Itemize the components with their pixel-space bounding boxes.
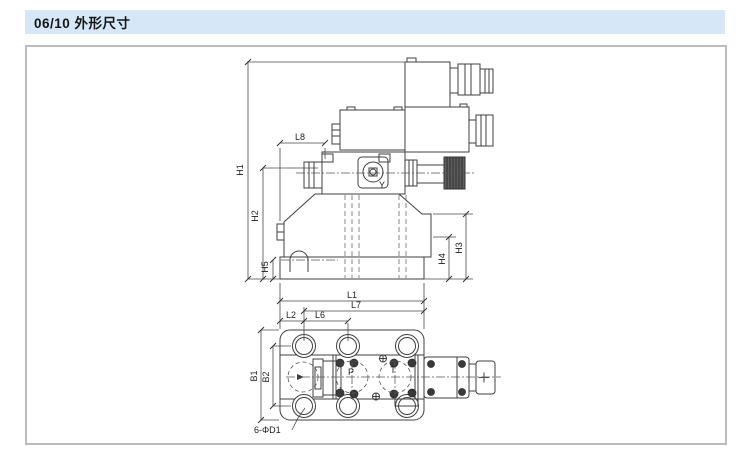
section-header-bar: 06/10 外形尺寸 xyxy=(25,10,725,34)
dimension-drawing: H1 H2 H5 H4 H3 L8 Y xyxy=(27,47,725,443)
adjuster-stem xyxy=(417,165,444,183)
dim-label-b2: B2 xyxy=(261,371,271,382)
valve-body-outline xyxy=(280,194,431,279)
port-label-p: P xyxy=(348,367,354,377)
solenoid-connector-lower xyxy=(476,115,493,146)
pilot-left-port-boss xyxy=(304,162,322,188)
dim-label-h1: H1 xyxy=(235,164,245,176)
port-label-y: Y xyxy=(379,180,385,190)
dim-label-h5: H5 xyxy=(260,261,270,273)
dim-label-l1: L1 xyxy=(347,290,357,300)
dim-label-b1: B1 xyxy=(249,370,259,381)
dim-label-h2: H2 xyxy=(250,210,260,222)
catalog-page: 06/10 外形尺寸 xyxy=(0,0,751,457)
electromagnet-body xyxy=(405,107,469,152)
side-view-drawing: H1 H2 H5 H4 H3 L8 Y xyxy=(235,58,493,282)
coil-housing xyxy=(405,62,450,107)
section-title: 06/10 外形尺寸 xyxy=(25,12,131,32)
cable-gland-cap xyxy=(480,69,493,93)
upper-left-boss xyxy=(332,124,340,144)
port-label-t: T xyxy=(390,365,396,375)
cable-gland-nut xyxy=(458,64,480,95)
dim-label-l2: L2 xyxy=(286,310,296,320)
bolt-hole-note: 6-ΦD1 xyxy=(254,425,281,435)
dim-label-l7: L7 xyxy=(351,300,361,310)
dim-label-h3: H3 xyxy=(454,242,464,254)
top-view-drawing: L1 L7 L2 L6 B1 B2 6-ΦD1 P T xyxy=(249,283,501,435)
pilot-valve-upper-body xyxy=(340,110,405,150)
dim-label-l6: L6 xyxy=(315,310,325,320)
dim-label-h4: H4 xyxy=(437,253,447,265)
dim-label-l8: L8 xyxy=(295,132,305,142)
drawing-panel: H1 H2 H5 H4 H3 L8 Y xyxy=(25,45,727,445)
